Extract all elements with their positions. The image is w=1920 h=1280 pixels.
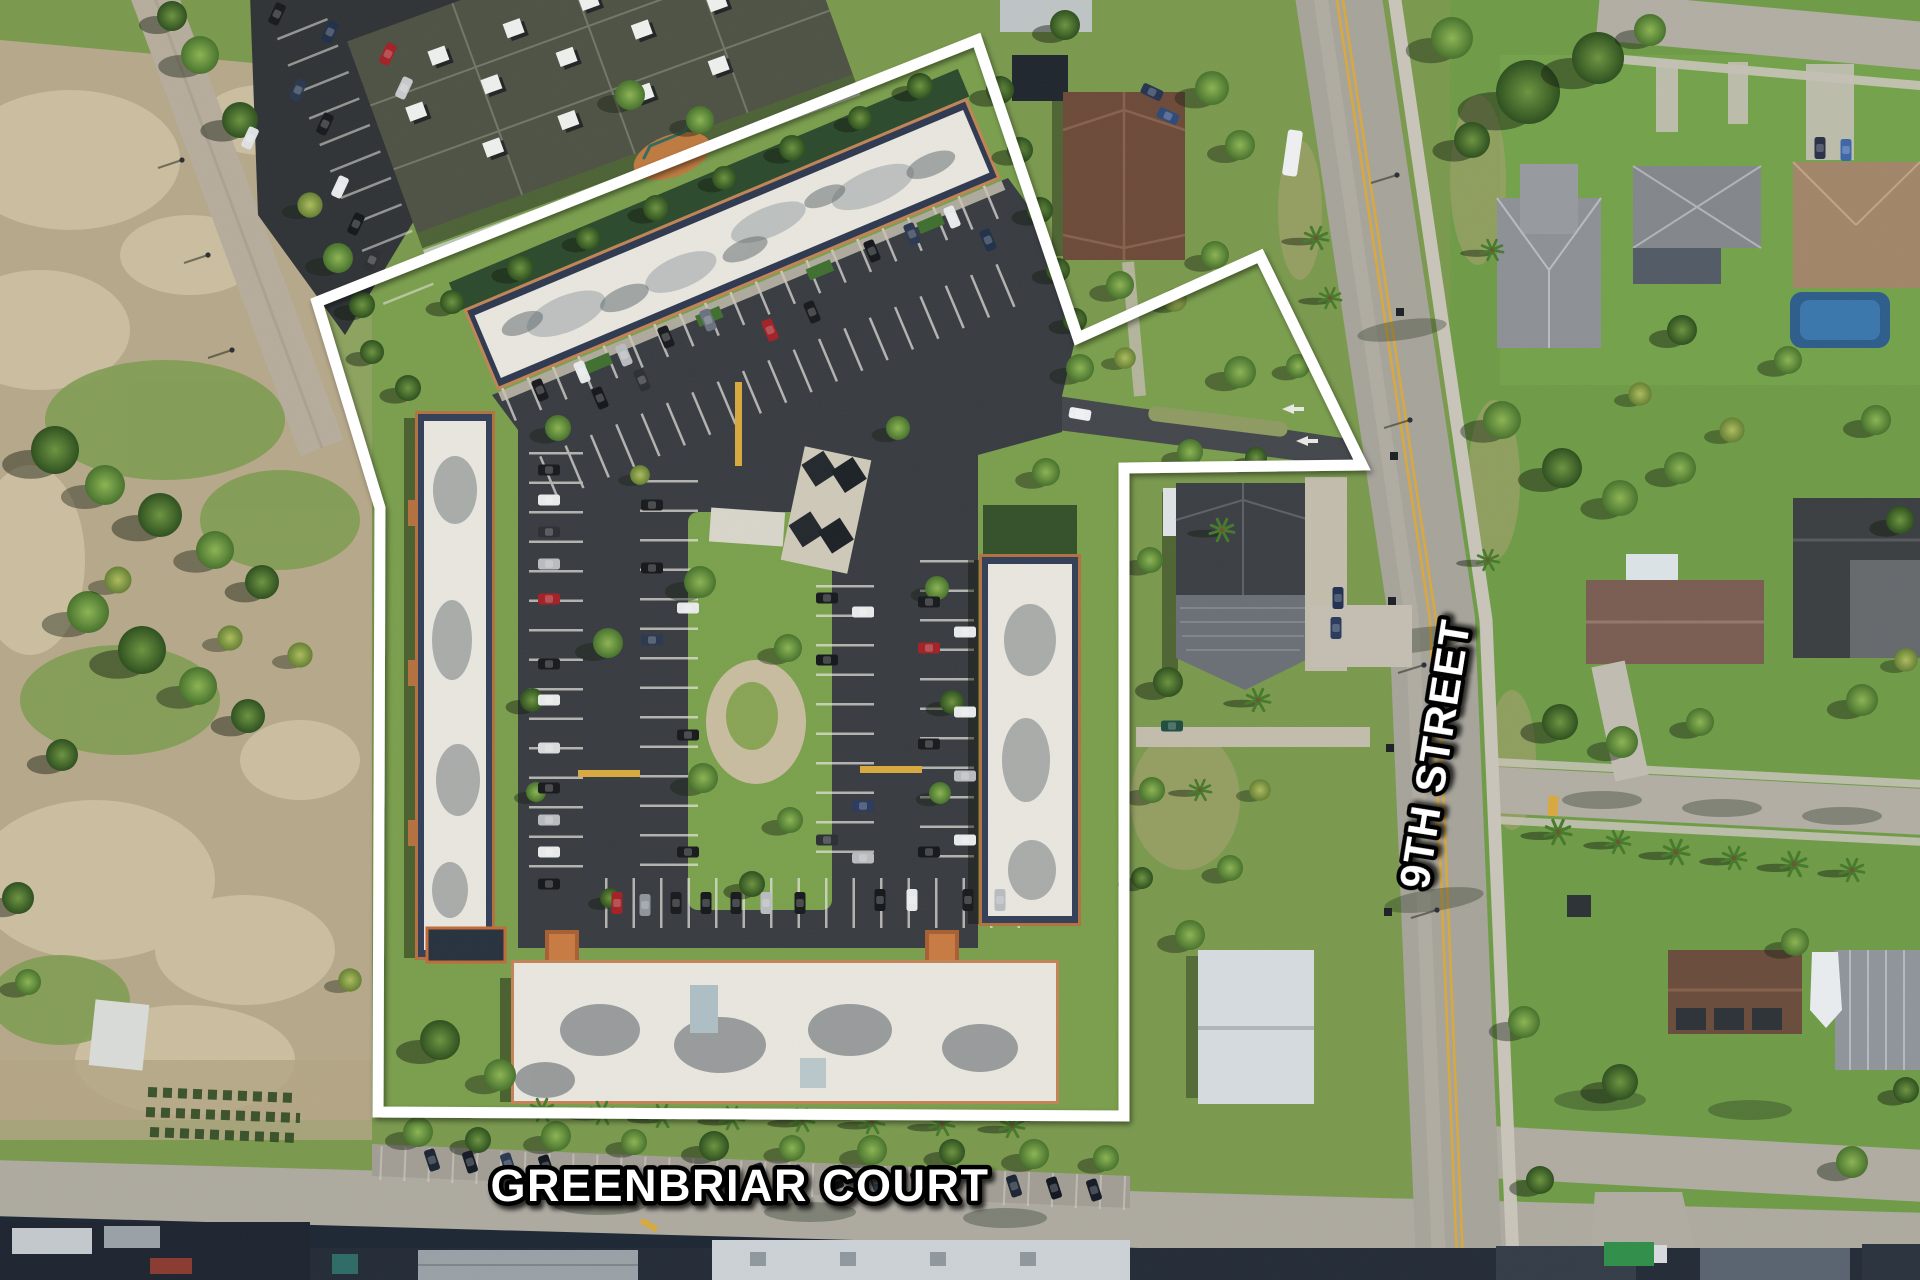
photo-grain bbox=[0, 0, 1920, 1280]
aerial-photo: GREENBRIAR COURT 9TH STREET bbox=[0, 0, 1920, 1280]
aerial-map: GREENBRIAR COURT 9TH STREET bbox=[0, 0, 1920, 1280]
greenbriar-court-label: GREENBRIAR COURT bbox=[490, 1160, 989, 1211]
